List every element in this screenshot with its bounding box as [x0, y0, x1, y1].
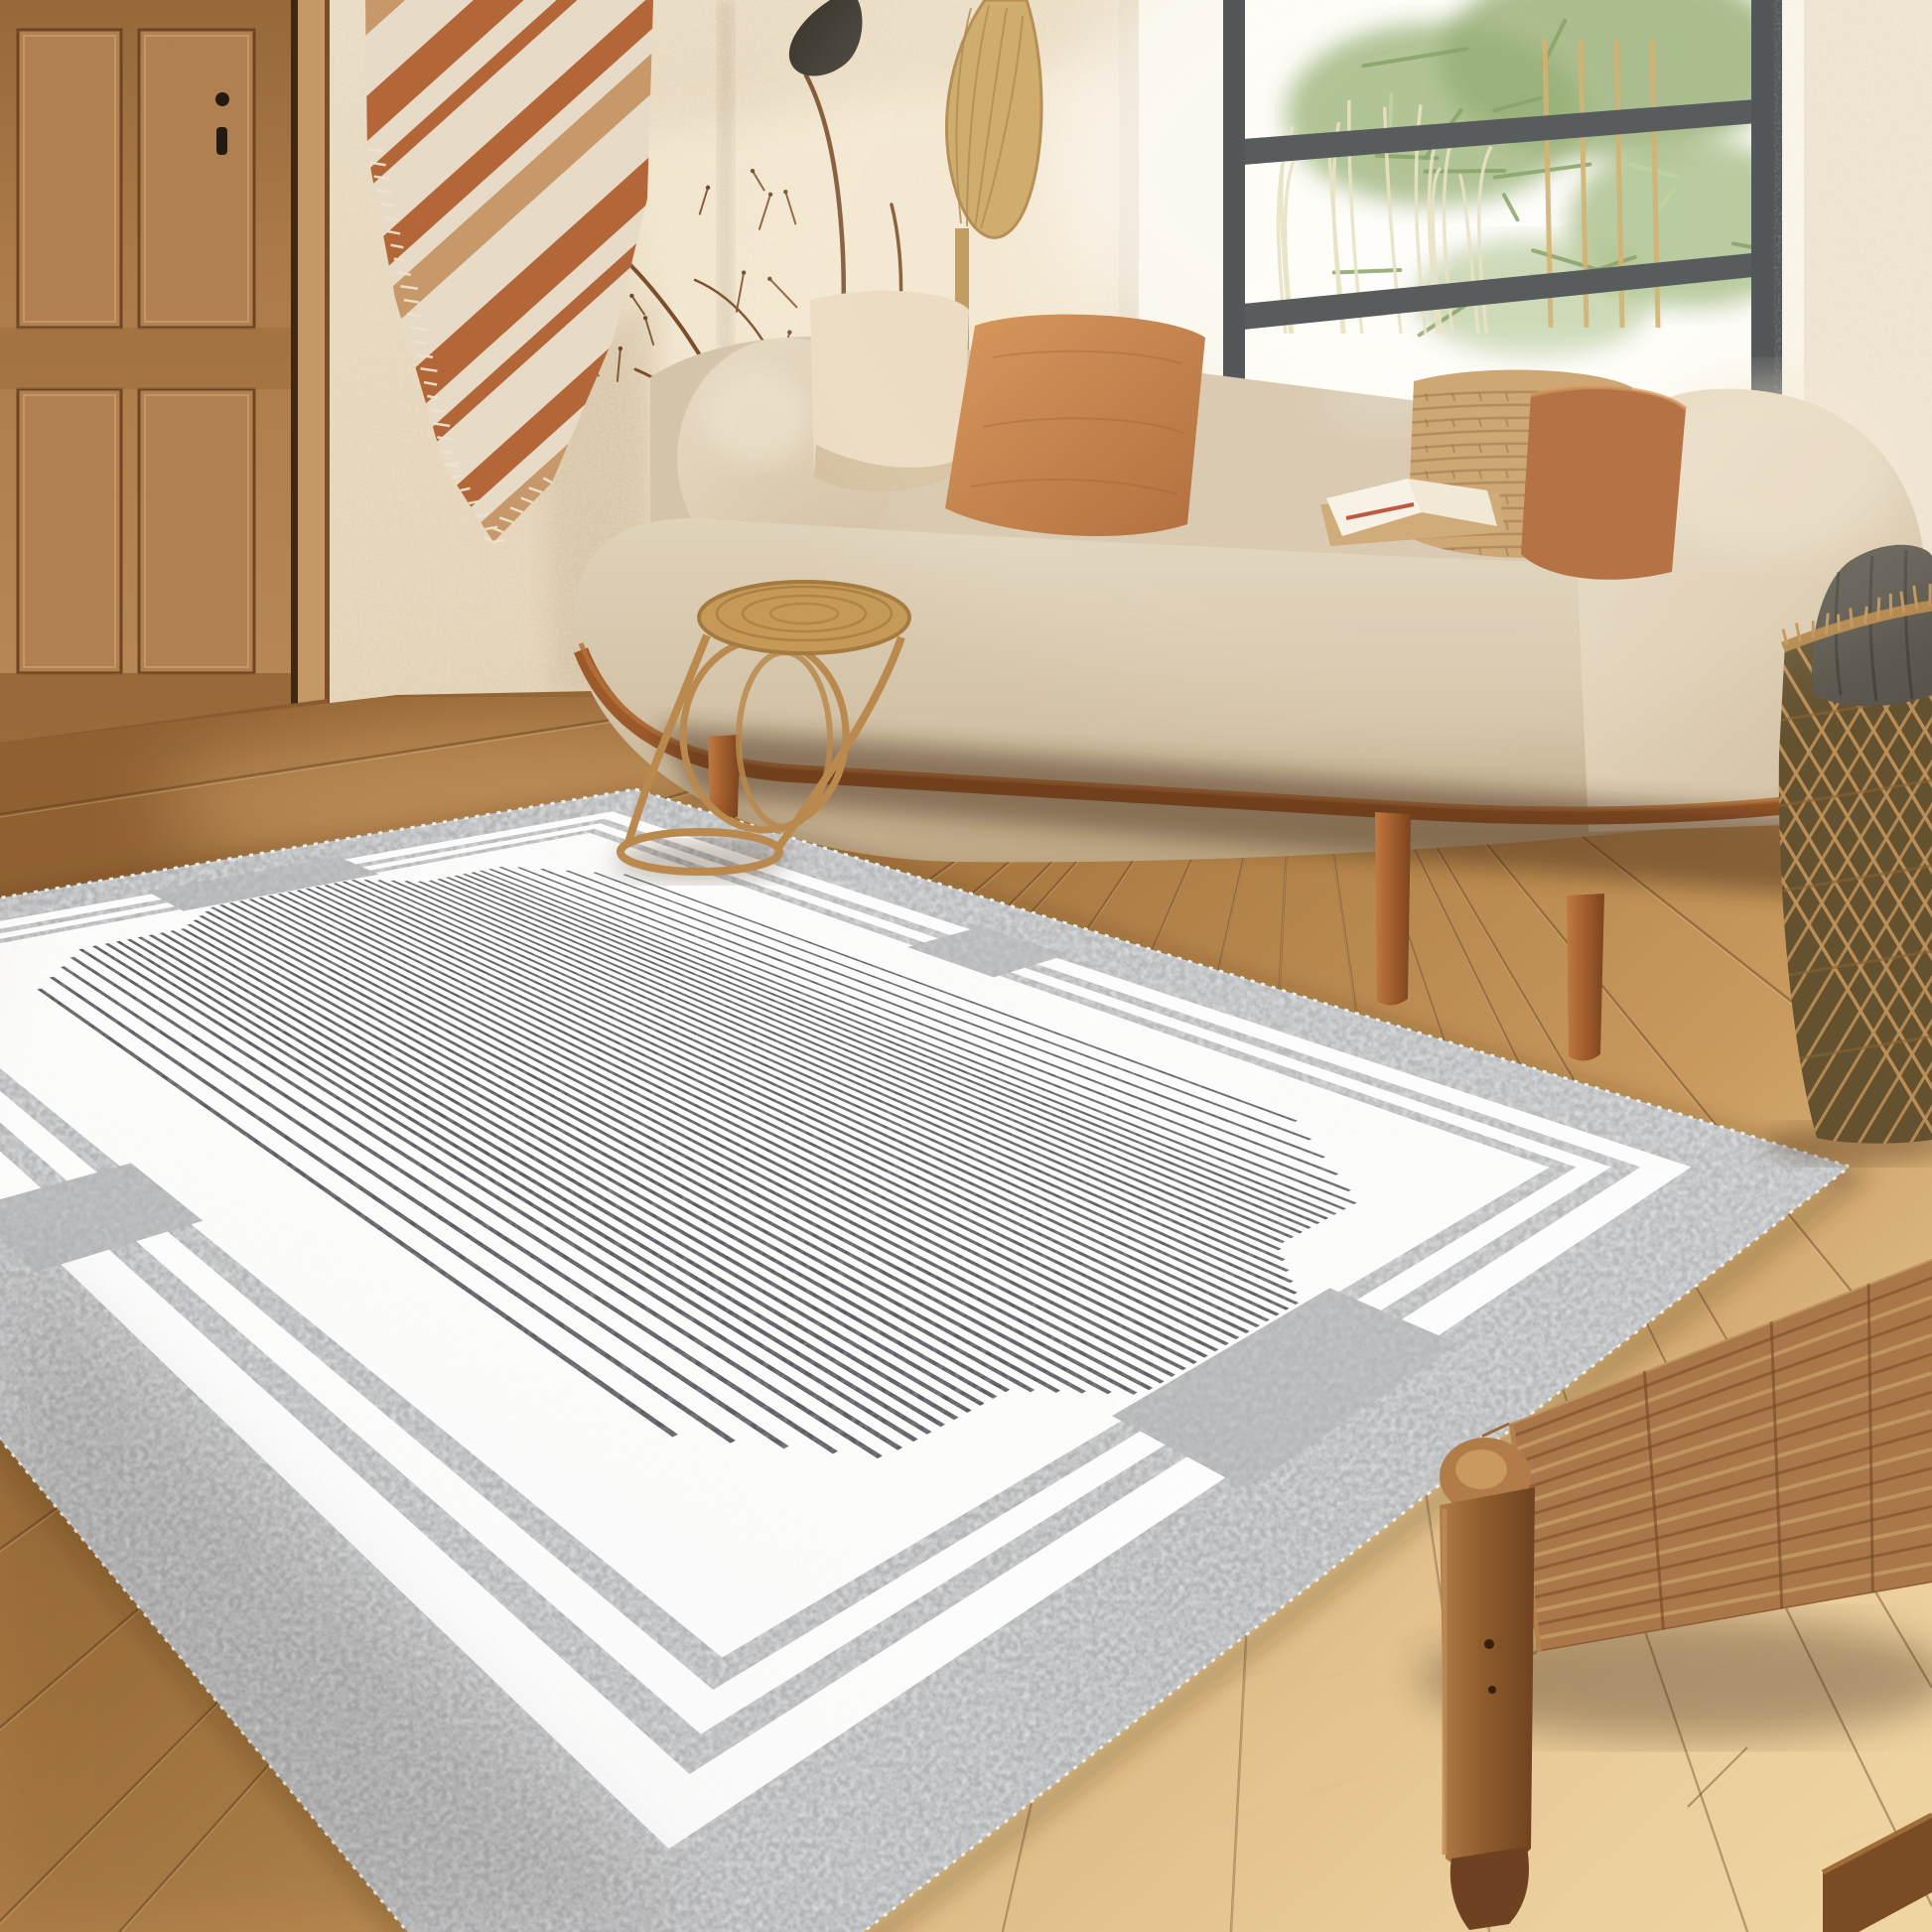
stool-post: [1440, 1487, 1535, 1869]
bud: [706, 186, 710, 190]
living-room-photo: [0, 0, 1932, 1932]
wood-knot: [1488, 1686, 1496, 1694]
bud: [643, 316, 647, 320]
table-top: [699, 582, 909, 653]
bud: [629, 294, 633, 298]
frame-edge: [325, 0, 330, 731]
wooden-door: [0, 0, 330, 764]
sofa-leg: [1567, 894, 1604, 1061]
door-grain: [0, 0, 295, 743]
door-frame-post: [298, 0, 328, 733]
wood-knot: [1484, 1639, 1494, 1649]
bud: [751, 169, 755, 173]
bud: [619, 346, 622, 350]
sofa-leg: [1375, 812, 1411, 1006]
stool-knob-top: [1455, 1449, 1507, 1489]
